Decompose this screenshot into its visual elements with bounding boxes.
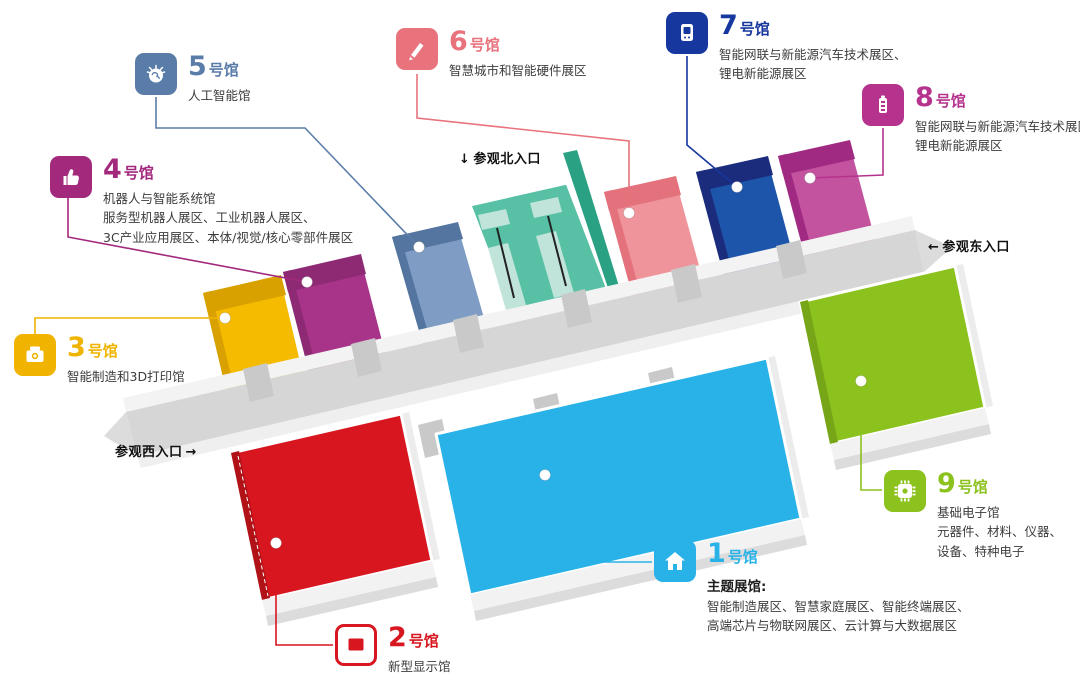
hall-3-desc: 智能制造和3D打印馆	[67, 367, 185, 386]
hall-9-anchor-dot	[856, 376, 867, 387]
hall-9-desc: 设备、特种电子	[937, 542, 1062, 561]
hall-9-name: 基础电子馆	[937, 503, 1062, 522]
hall-2-title: 2号馆	[388, 624, 451, 651]
right-arrow-icon: →	[186, 445, 197, 460]
hall-9-desc: 元器件、材料、仪器、	[937, 522, 1062, 541]
hall-4-desc: 3C产业应用展区、本体/视觉/核心零部件展区	[103, 228, 353, 247]
hall-3-anchor-dot	[220, 313, 231, 324]
hall-5-desc: 人工智能馆	[188, 86, 251, 105]
hall-2-anchor-dot	[271, 538, 282, 549]
hall-4-anchor-dot	[302, 277, 313, 288]
hall-2-callout: 2号馆 新型显示馆	[335, 624, 451, 676]
hall-9-title: 9号馆	[937, 470, 1062, 497]
hall-5-callout: 5号馆 人工智能馆	[135, 53, 251, 105]
hall-1-lead: 主题展馆:	[707, 575, 970, 595]
hall-8-desc: 智能网联与新能源汽车技术展区	[915, 117, 1080, 136]
printer-3d-icon	[14, 334, 56, 376]
hall-7-callout: 7号馆 智能网联与新能源汽车技术展区、锂电新能源展区	[666, 12, 907, 84]
hall-4-name: 机器人与智能系统馆	[103, 189, 353, 208]
home-icon	[654, 540, 696, 582]
hall-1-anchor-dot	[540, 470, 551, 481]
hall-2-desc: 新型显示馆	[388, 657, 451, 676]
hall-5-anchor-dot	[414, 242, 425, 253]
hall-6-callout: 6号馆 智慧城市和智能硬件展区	[396, 28, 587, 80]
hall-8-callout: 8号馆 智能网联与新能源汽车技术展区锂电新能源展区	[862, 84, 1080, 156]
hall-6-title: 6号馆	[449, 28, 587, 55]
hall-2-shape	[231, 412, 440, 626]
left-arrow-icon: ←	[928, 240, 939, 255]
hall-1-desc: 高端芯片与物联网展区、云计算与大数据展区	[707, 616, 970, 635]
hall-3-title: 3号馆	[67, 334, 185, 361]
hall-7-anchor-dot	[732, 182, 743, 193]
north-entrance-label: ↓参观北入口	[456, 148, 541, 167]
brain-icon	[135, 53, 177, 95]
hand-icon	[50, 156, 92, 198]
down-arrow-icon: ↓	[459, 152, 470, 167]
east-entrance-label: ←参观东入口	[925, 236, 1010, 255]
hall-4-desc: 服务型机器人展区、工业机器人展区、	[103, 208, 353, 227]
hall-9-callout: 9号馆 基础电子馆元器件、材料、仪器、设备、特种电子	[884, 470, 1062, 561]
ev-charger-icon	[666, 12, 708, 54]
chip-icon	[884, 470, 926, 512]
hall-8-desc: 锂电新能源展区	[915, 136, 1080, 155]
hall-8-title: 8号馆	[915, 84, 1080, 111]
expo-floor-map: ↓参观北入口 ←参观东入口 参观西入口→ 5号馆 人工智能馆 6号馆 智慧城市和…	[0, 0, 1080, 696]
hall-7-desc: 锂电新能源展区	[719, 64, 907, 83]
pen-icon	[396, 28, 438, 70]
hall-8-anchor-dot	[805, 173, 816, 184]
hall-5-title: 5号馆	[188, 53, 251, 80]
hall-6-anchor-dot	[624, 208, 635, 219]
hall-9-shape	[800, 264, 993, 470]
hall-4-title: 4号馆	[103, 156, 353, 183]
hall-7-desc: 智能网联与新能源汽车技术展区、	[719, 45, 907, 64]
hall-1-desc: 智能制造展区、智慧家庭展区、智能终端展区、	[707, 597, 970, 616]
west-entrance-label: 参观西入口→	[115, 441, 200, 460]
hall-3-callout: 3号馆 智能制造和3D打印馆	[14, 334, 185, 386]
battery-icon	[862, 84, 904, 126]
hall-6-desc: 智慧城市和智能硬件展区	[449, 61, 587, 80]
hall-4-callout: 4号馆 机器人与智能系统馆服务型机器人展区、工业机器人展区、3C产业应用展区、本…	[50, 156, 353, 247]
display-icon	[335, 624, 377, 666]
hall-7-title: 7号馆	[719, 12, 907, 39]
